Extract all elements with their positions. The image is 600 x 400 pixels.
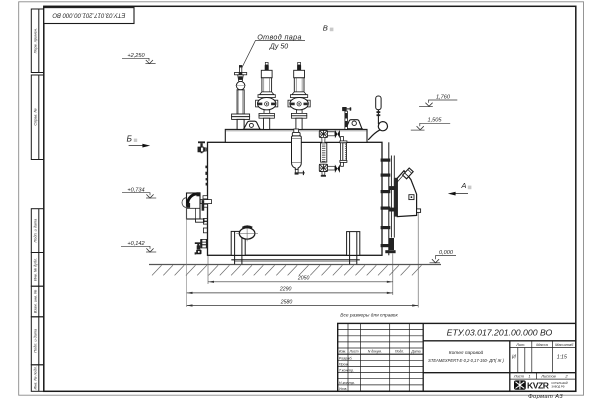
svg-text:2290: 2290 — [279, 287, 292, 293]
svg-text:1,505: 1,505 — [428, 117, 443, 123]
svg-text:KVZR: KVZR — [527, 381, 550, 391]
svg-text:STEAMEXPERT-Е-0,2-0,17-150- ДП: STEAMEXPERT-Е-0,2-0,17-150- ДП( Ж ) — [428, 358, 504, 363]
svg-text:Лист: Лист — [348, 350, 358, 354]
svg-text:Взам. инв. №: Взам. инв. № — [34, 290, 38, 313]
svg-text:1,760: 1,760 — [436, 94, 451, 100]
svg-text:Подп.: Подп. — [395, 350, 404, 354]
svg-text:Утв.: Утв. — [339, 387, 348, 391]
svg-text:Лит.: Лит. — [515, 342, 525, 347]
svg-text:Все размеры для справок: Все размеры для справок — [340, 313, 398, 319]
svg-text:Инв. № подл.: Инв. № подл. — [34, 366, 38, 390]
svg-text:И: И — [512, 355, 516, 361]
svg-text:Н.контр.: Н.контр. — [339, 381, 355, 385]
svg-text:Масса: Масса — [536, 342, 548, 347]
svg-text:Перв. примен.: Перв. примен. — [34, 28, 38, 53]
svg-text:1:15: 1:15 — [557, 355, 567, 361]
svg-text:Пров.: Пров. — [339, 362, 349, 366]
svg-text:ЕТУ.03.017.201.00.000 ВО: ЕТУ.03.017.201.00.000 ВО — [447, 328, 553, 338]
svg-text:Котел паровой: Котел паровой — [449, 349, 484, 356]
svg-text:Изм.: Изм. — [339, 350, 346, 354]
svg-text:Подп. и дата: Подп. и дата — [34, 219, 38, 243]
svg-text:А: А — [460, 181, 466, 190]
svg-text:2580: 2580 — [280, 299, 293, 305]
svg-text:N докум.: N докум. — [368, 350, 382, 354]
svg-text:2050: 2050 — [297, 276, 310, 282]
svg-text:Б: Б — [127, 134, 133, 144]
svg-text:Листов: Листов — [540, 374, 556, 379]
svg-text:ЗАВОД РФ: ЗАВОД РФ — [552, 385, 565, 389]
svg-text:Т.контр.: Т.контр. — [339, 369, 354, 373]
svg-text:Подп. и дата: Подп. и дата — [34, 329, 38, 353]
svg-text:Ду 50: Ду 50 — [269, 44, 288, 51]
svg-text:Инв. № дубл.: Инв. № дубл. — [34, 258, 38, 281]
svg-text:Разраб.: Разраб. — [339, 356, 353, 360]
svg-text:Масштаб: Масштаб — [555, 342, 574, 347]
svg-text:Формат А3: Формат А3 — [528, 394, 563, 400]
svg-text:Справ. №: Справ. № — [34, 108, 38, 125]
svg-text:КОТЕЛЬНЫЙ: КОТЕЛЬНЫЙ — [552, 381, 568, 385]
svg-text:1: 1 — [528, 374, 530, 379]
svg-text:Дата: Дата — [410, 350, 420, 354]
svg-text:ЕТУ.03.017.201.00.000 ВО: ЕТУ.03.017.201.00.000 ВО — [52, 11, 125, 17]
svg-text:Лист: Лист — [513, 374, 525, 379]
svg-text:В: В — [323, 23, 328, 32]
